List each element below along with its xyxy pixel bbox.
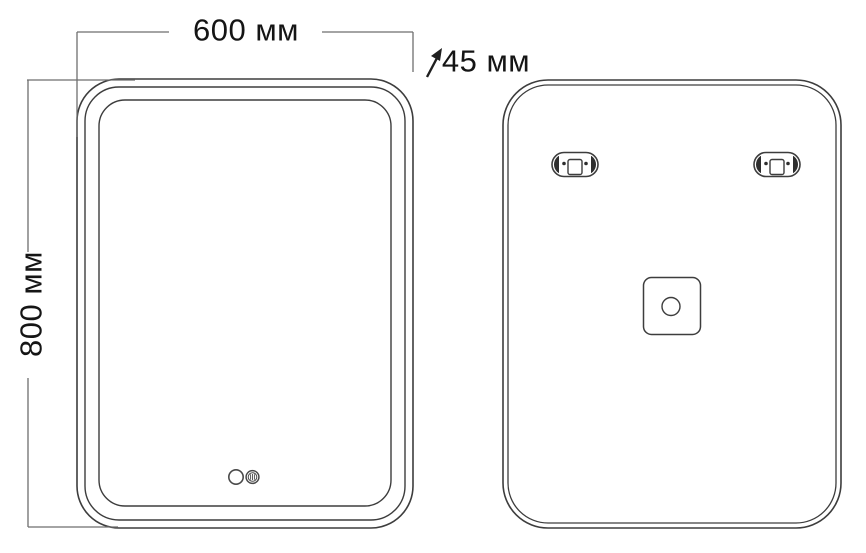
bracket-keyhole-slot <box>568 160 582 175</box>
led-frame-inner-line <box>99 100 391 506</box>
height-dimension-label: 800 мм <box>16 251 47 357</box>
led-frame-outer-line <box>85 87 405 520</box>
mirror-back-view <box>503 80 841 528</box>
mirror-dimension-diagram: 600 мм 45 мм 800 мм <box>0 0 866 553</box>
mirror-outer-edge <box>77 79 413 528</box>
demister-touch-icon <box>246 471 259 484</box>
back-outer-edge <box>503 80 841 528</box>
depth-dimension <box>427 48 442 77</box>
power-touch-icon <box>229 470 243 484</box>
depth-arrow-icon <box>427 48 442 77</box>
junction-box-icon <box>644 278 701 335</box>
back-inner-edge <box>508 85 836 523</box>
junction-box-hole <box>662 298 680 316</box>
mounting-bracket-left-icon <box>552 153 598 177</box>
width-dimension-label: 600 мм <box>193 15 299 46</box>
mirror-front-view <box>77 79 413 528</box>
bracket-keyhole-slot <box>770 160 784 175</box>
mounting-bracket-right-icon <box>754 153 800 177</box>
depth-dimension-label: 45 мм <box>442 46 530 77</box>
width-dimension <box>77 32 413 137</box>
diagram-canvas <box>0 0 866 553</box>
